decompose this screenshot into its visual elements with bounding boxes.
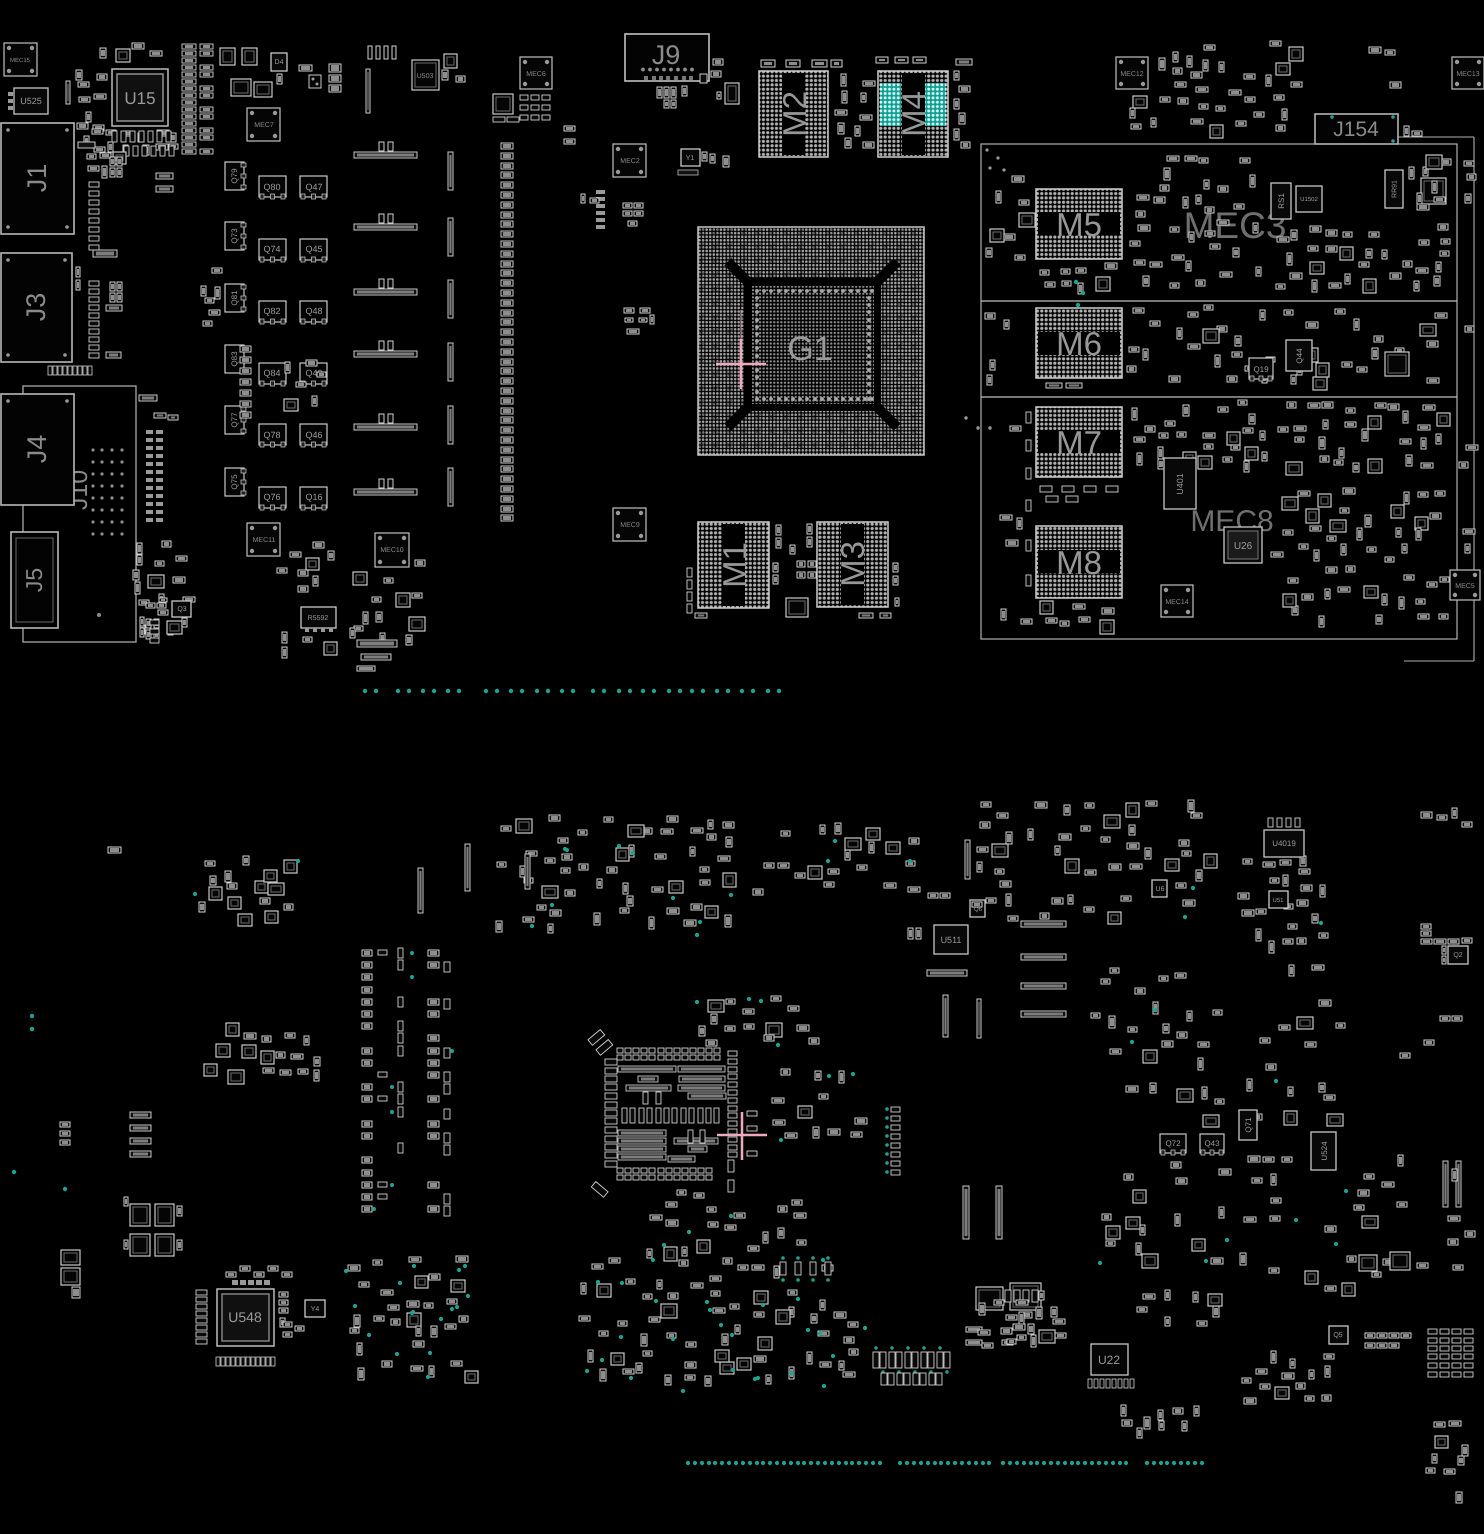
svg-text:G1: G1: [787, 330, 832, 368]
svg-text:Q2: Q2: [1453, 952, 1462, 959]
svg-text:Q5: Q5: [1333, 1332, 1342, 1339]
svg-text:Q74: Q74: [263, 244, 280, 254]
svg-text:J154: J154: [1333, 118, 1379, 141]
svg-text:RS1: RS1: [1277, 193, 1286, 209]
svg-text:U4019: U4019: [1272, 839, 1296, 848]
svg-text:MEC12: MEC12: [1120, 71, 1143, 78]
svg-text:M1: M1: [716, 542, 753, 588]
svg-text:M7: M7: [1056, 424, 1102, 461]
svg-text:Q83: Q83: [230, 351, 239, 367]
svg-text:Q45: Q45: [305, 244, 322, 254]
svg-text:MEC7: MEC7: [254, 122, 274, 129]
svg-text:U6: U6: [1156, 886, 1165, 893]
svg-text:U524: U524: [1320, 1141, 1329, 1161]
svg-text:MEC13: MEC13: [1456, 71, 1479, 78]
svg-text:Q80: Q80: [263, 182, 280, 192]
svg-text:MEC10: MEC10: [380, 547, 403, 554]
svg-text:J3: J3: [21, 293, 51, 322]
svg-text:U15: U15: [124, 89, 155, 108]
svg-text:M3: M3: [834, 541, 871, 587]
svg-text:RR91: RR91: [1391, 180, 1398, 198]
svg-text:M5: M5: [1056, 206, 1102, 243]
svg-text:Q46: Q46: [305, 430, 322, 440]
svg-text:U26: U26: [1234, 541, 1253, 552]
svg-text:Q43: Q43: [1204, 1139, 1220, 1148]
svg-text:Q82: Q82: [263, 306, 280, 316]
svg-text:Q73: Q73: [230, 228, 239, 244]
svg-text:Q78: Q78: [263, 430, 280, 440]
svg-text:Q79: Q79: [230, 168, 239, 184]
svg-text:Y4: Y4: [311, 1306, 320, 1313]
svg-text:MEC2: MEC2: [620, 158, 640, 165]
svg-text:Q71: Q71: [1244, 1117, 1253, 1133]
svg-text:U503: U503: [417, 73, 434, 80]
svg-text:Q16: Q16: [305, 492, 322, 502]
svg-text:Q84: Q84: [263, 368, 280, 378]
svg-text:J9: J9: [652, 40, 681, 70]
svg-text:D4: D4: [275, 59, 284, 66]
svg-text:Q81: Q81: [230, 290, 239, 306]
svg-text:U401: U401: [1175, 473, 1185, 495]
svg-text:J4: J4: [22, 435, 52, 464]
svg-text:M2: M2: [776, 91, 813, 137]
svg-text:Q76: Q76: [263, 492, 280, 502]
svg-text:Q72: Q72: [1165, 1139, 1181, 1148]
svg-text:M6: M6: [1056, 325, 1102, 362]
svg-text:J1: J1: [22, 164, 52, 193]
svg-text:Y1: Y1: [686, 155, 695, 162]
svg-text:U22: U22: [1098, 1353, 1120, 1367]
svg-text:MEC15: MEC15: [10, 57, 31, 64]
svg-text:U1502: U1502: [1300, 196, 1318, 203]
svg-text:Q19: Q19: [1253, 365, 1269, 374]
svg-text:U548: U548: [228, 1309, 262, 1325]
svg-text:MEC14: MEC14: [1165, 599, 1188, 606]
svg-text:R5592: R5592: [308, 615, 329, 622]
svg-text:Q75: Q75: [230, 474, 239, 490]
svg-text:U525: U525: [20, 96, 42, 106]
svg-text:J5: J5: [21, 568, 47, 592]
svg-text:MEC6: MEC6: [526, 71, 546, 78]
svg-text:U51: U51: [1272, 897, 1284, 904]
svg-text:Q3: Q3: [177, 606, 186, 613]
svg-text:MEC11: MEC11: [253, 537, 276, 544]
svg-text:Q44: Q44: [1295, 348, 1304, 364]
svg-text:U511: U511: [941, 935, 962, 945]
svg-text:M8: M8: [1056, 544, 1102, 581]
svg-text:MEC5: MEC5: [1455, 583, 1475, 590]
svg-text:MEC9: MEC9: [620, 522, 640, 529]
svg-text:Q47: Q47: [305, 182, 322, 192]
svg-text:Q77: Q77: [230, 412, 239, 428]
svg-text:Q48: Q48: [305, 306, 322, 316]
svg-text:M4: M4: [895, 91, 932, 137]
